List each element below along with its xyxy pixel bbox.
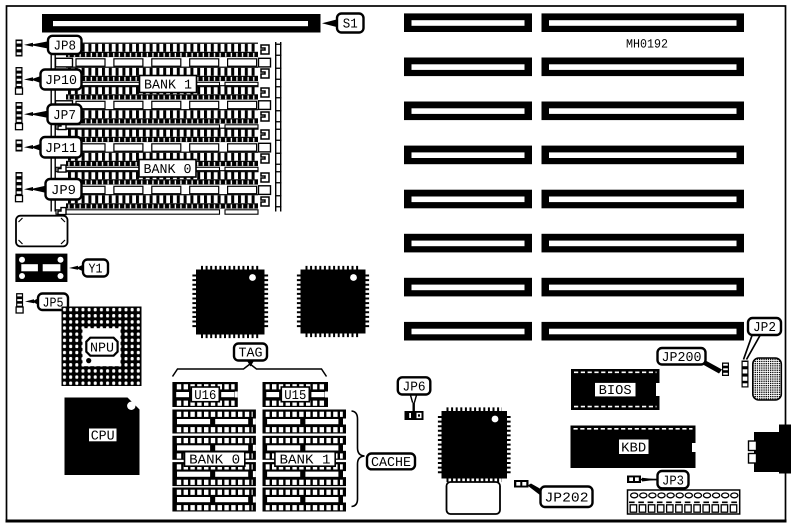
svg-text:JP6: JP6 bbox=[403, 381, 426, 396]
svg-text:NPU: NPU bbox=[90, 342, 114, 357]
svg-text:U16: U16 bbox=[194, 389, 216, 404]
svg-text:TAG: TAG bbox=[239, 347, 263, 362]
svg-text:MH0192: MH0192 bbox=[626, 38, 668, 52]
svg-text:Y1: Y1 bbox=[89, 263, 103, 278]
svg-text:CPU: CPU bbox=[91, 429, 115, 444]
svg-text:U15: U15 bbox=[284, 389, 306, 404]
svg-text:JP200: JP200 bbox=[662, 351, 702, 366]
svg-text:CACHE: CACHE bbox=[371, 456, 411, 471]
svg-text:KBD: KBD bbox=[621, 442, 646, 457]
svg-text:BANK 1: BANK 1 bbox=[280, 454, 331, 469]
svg-text:JP10: JP10 bbox=[45, 74, 77, 89]
svg-text:JP202: JP202 bbox=[545, 491, 589, 506]
svg-text:JP5: JP5 bbox=[43, 296, 64, 311]
svg-text:JP8: JP8 bbox=[54, 40, 77, 55]
svg-text:JP9: JP9 bbox=[51, 184, 76, 199]
svg-text:BIOS: BIOS bbox=[599, 384, 632, 399]
svg-text:JP11: JP11 bbox=[45, 142, 77, 157]
svg-text:S1: S1 bbox=[343, 18, 358, 33]
svg-text:JP2: JP2 bbox=[753, 321, 776, 336]
svg-text:BANK 0: BANK 0 bbox=[144, 163, 192, 178]
svg-text:BANK 0: BANK 0 bbox=[189, 454, 240, 469]
svg-text:BANK 1: BANK 1 bbox=[144, 79, 192, 94]
svg-text:JP7: JP7 bbox=[53, 109, 76, 124]
svg-text:JP3: JP3 bbox=[662, 474, 684, 489]
